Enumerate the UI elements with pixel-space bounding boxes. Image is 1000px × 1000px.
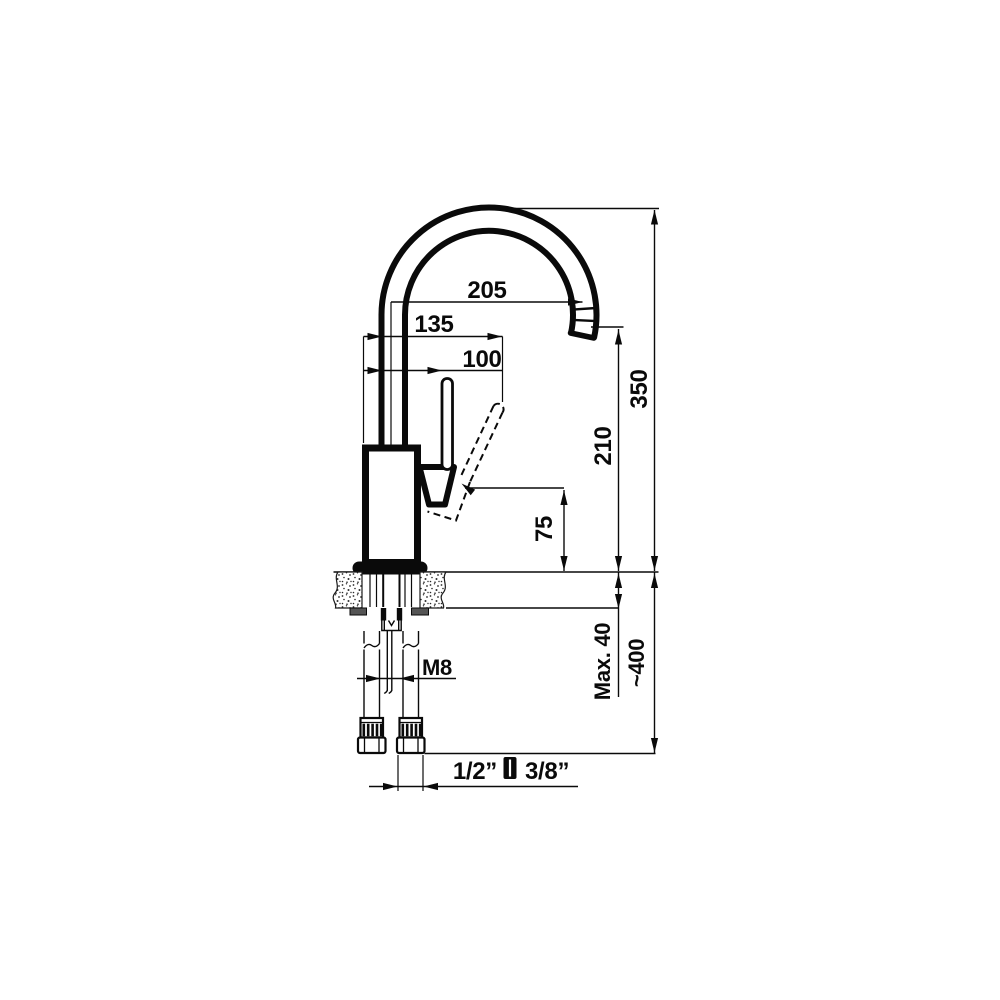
dim-connection-secondary-label: 3/8” bbox=[525, 758, 569, 785]
aerator-band-line-2 bbox=[573, 320, 596, 321]
dim-connection-arrow-right bbox=[424, 783, 439, 790]
handle-lever bbox=[442, 379, 453, 470]
handle-assembly bbox=[420, 379, 455, 505]
shank-bar-right bbox=[397, 608, 402, 621]
dim-350-arrow-bottom bbox=[651, 556, 658, 571]
hose-break-wave-left bbox=[364, 644, 380, 649]
dim-210-arrow-bottom bbox=[615, 556, 622, 571]
dim-max40-arrow-top bbox=[615, 574, 622, 589]
dim-hose-length: ~400 bbox=[624, 572, 658, 753]
dim-stud-thread-label: M8 bbox=[422, 655, 452, 680]
aerator-band-line-1 bbox=[573, 308, 596, 310]
dim-total-height: 350 bbox=[489, 209, 659, 572]
dim-400-arrow-bottom bbox=[651, 738, 658, 753]
hex-nut-left bbox=[358, 738, 386, 754]
hole-tube-lines bbox=[370, 574, 412, 607]
dim-handle-reach-label: 100 bbox=[462, 346, 501, 373]
shank-wall-lines bbox=[383, 574, 399, 607]
drawing-svg: 205 135 100 350 bbox=[0, 0, 1000, 1000]
dashed-lever-tip bbox=[494, 404, 504, 413]
dim-75-arrow-bottom bbox=[560, 556, 567, 571]
faucet-spec-drawing: 205 135 100 350 bbox=[0, 0, 1000, 1000]
mounting-washer-right bbox=[412, 608, 429, 615]
dim-total-height-label: 350 bbox=[626, 369, 653, 408]
dim-m8-arrow-right bbox=[400, 675, 415, 682]
dim-75-arrow-top bbox=[560, 491, 567, 506]
dim-stud-thread: M8 bbox=[357, 655, 456, 682]
dim-135-arrow-right bbox=[488, 333, 503, 340]
hose-break-wave-right bbox=[403, 644, 419, 649]
dim-handle-open-reach-label: 135 bbox=[414, 311, 453, 338]
mounting-washer-left bbox=[350, 608, 367, 615]
dim-connection-size: 1/2” 3/8” bbox=[369, 754, 656, 792]
hose-connector-left bbox=[358, 718, 386, 753]
mounting-bracket bbox=[382, 621, 401, 631]
dim-max40-arrow-bottom bbox=[615, 594, 622, 609]
faucet-body bbox=[366, 448, 418, 563]
handle-cartridge bbox=[420, 467, 455, 505]
countertop-section bbox=[333, 572, 658, 608]
dim-connection-primary-label: 1/2” bbox=[453, 758, 497, 785]
dim-handle-raise-height: 75 bbox=[459, 481, 567, 571]
faucet bbox=[353, 207, 597, 574]
spout-tip-face bbox=[571, 333, 595, 338]
dim-handle-raise-height-label: 75 bbox=[531, 516, 558, 542]
dim-max-counter-thickness-label: Max. 40 bbox=[590, 623, 615, 700]
dim-spout-outlet-height-label: 210 bbox=[590, 426, 617, 465]
dim-spout-outlet-height: 210 bbox=[590, 327, 624, 571]
dim-350-arrow-top bbox=[651, 210, 658, 225]
counter-slab-right bbox=[420, 572, 446, 608]
hose-connectors bbox=[358, 718, 425, 753]
dim-400-arrow-top bbox=[651, 574, 658, 589]
dim-connection-arrow-left bbox=[383, 783, 398, 790]
hose-connector-right bbox=[397, 718, 425, 753]
dim-spout-reach-label: 205 bbox=[467, 277, 506, 304]
dim-210-arrow-top bbox=[615, 330, 622, 345]
hex-nut-right bbox=[397, 738, 425, 754]
dim-max-counter-thickness: Max. 40 bbox=[590, 572, 622, 700]
shank-bar-left bbox=[381, 608, 386, 621]
m8-stud-rod bbox=[384, 631, 392, 694]
dim-100-arrow-right bbox=[428, 367, 443, 374]
thread-size-separator-icon bbox=[504, 757, 517, 779]
dim-m8-arrow-left bbox=[366, 675, 381, 682]
connection-extension-lines bbox=[398, 755, 423, 791]
dim-hose-length-label: ~400 bbox=[624, 639, 649, 687]
counter-slab-left bbox=[333, 572, 362, 608]
faucet-riser-pipe bbox=[382, 314, 406, 448]
